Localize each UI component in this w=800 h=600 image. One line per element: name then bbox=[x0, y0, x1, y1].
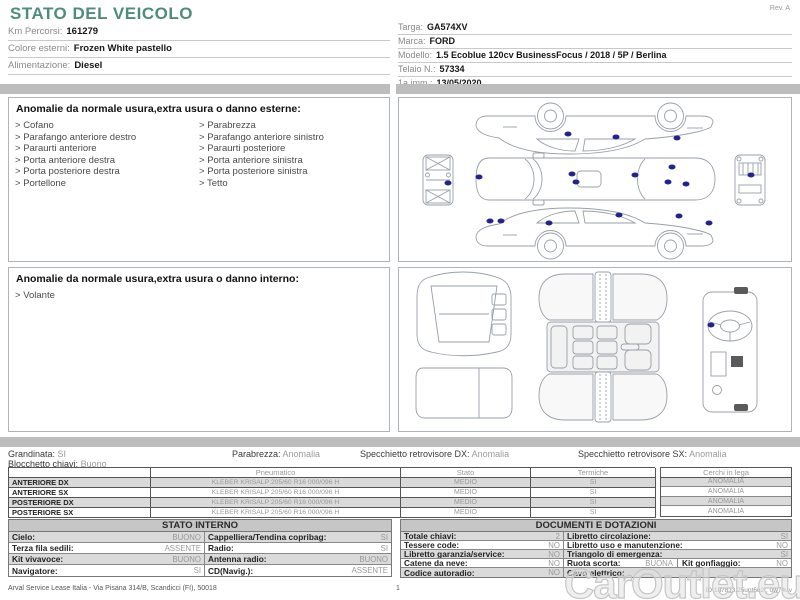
table-row: Kit vivavoce: BUONO Antenna radio: BUONO bbox=[9, 554, 391, 565]
tyre-spec: KLEBER KRISALP 205/60 R16 000/096 H bbox=[151, 488, 401, 498]
row-label: Catene da neve: bbox=[404, 559, 468, 567]
anomaly-column-right: Parabrezza Parafango anteriore sinistro … bbox=[199, 120, 383, 189]
row-label: CD(Navig.): bbox=[208, 566, 253, 576]
anomaly-item: Paraurti anteriore bbox=[15, 143, 199, 155]
anomaly-item: Porta anteriore sinistra bbox=[199, 155, 383, 167]
row-label: Kit vivavoce: bbox=[12, 554, 63, 564]
anomaly-item: Cofano bbox=[15, 120, 199, 132]
anomaly-item: Porta posteriore sinistra bbox=[199, 166, 383, 178]
exterior-diagram-box bbox=[398, 97, 792, 262]
vehicle-info-right: Targa: GA574XV Marca: FORD Modello: 1.5 … bbox=[398, 21, 792, 91]
field-value: FORD bbox=[430, 36, 456, 46]
tyre-stato: MEDIO bbox=[401, 478, 531, 488]
cerchi-in-lega-table: Cerchi in lega ANOMALIA ANOMALIA ANOMALI… bbox=[660, 467, 792, 517]
row-value: NO bbox=[548, 559, 560, 567]
field-label: Km Percorsi: bbox=[8, 26, 62, 37]
table-row: Cielo: BUONO Cappelliera/Tendina copriba… bbox=[9, 532, 391, 543]
stato-interno-table: STATO INTERNO Cielo: BUONO Cappelliera/T… bbox=[8, 519, 392, 577]
interior-anomalies-box: Anomalie da normale usura,extra usura o … bbox=[8, 267, 390, 432]
cerchi-value: ANOMALIA bbox=[661, 506, 791, 516]
field-telaio: Telaio N.: 57334 bbox=[398, 63, 792, 77]
tyre-termiche: SI bbox=[531, 478, 656, 488]
interior-anomalies-title: Anomalie da normale usura,extra usura o … bbox=[16, 273, 383, 285]
row-value: SI bbox=[381, 544, 388, 553]
tyre-stato: MEDIO bbox=[401, 488, 531, 498]
summary-label: Grandinata: bbox=[8, 449, 55, 459]
row-label: Radio: bbox=[208, 543, 234, 553]
stato-interno-title: STATO INTERNO bbox=[9, 520, 391, 532]
field-label: Telaio N.: bbox=[398, 64, 436, 74]
divider-band bbox=[396, 84, 800, 94]
row-value: SI bbox=[781, 532, 788, 540]
caroutlet-watermark: CarOutlet.eu bbox=[564, 560, 800, 600]
tyre-stato: MEDIO bbox=[401, 508, 531, 518]
anomaly-item: Parafango anteriore sinistro bbox=[199, 132, 383, 144]
row-label: Codice autoradio: bbox=[404, 568, 475, 577]
summary-parabrezza: Parabrezza: Anomalia bbox=[232, 449, 320, 459]
row-value: ASSENTE bbox=[352, 566, 388, 575]
table-row: Libretto garanzia/service: NO Triangolo … bbox=[401, 550, 791, 559]
row-label: Libretto garanzia/service: bbox=[404, 550, 505, 558]
anomaly-column-left: Cofano Parafango anteriore destro Paraur… bbox=[15, 120, 199, 189]
row-label: Tessere code: bbox=[404, 541, 459, 549]
tyre-position: POSTERIORE SX bbox=[9, 508, 151, 518]
anomaly-item: Porta posteriore destra bbox=[15, 166, 199, 178]
anomaly-item: Tetto bbox=[199, 178, 383, 190]
summary-value: Anomalia bbox=[283, 449, 321, 459]
row-label: Cappelliera/Tendina copribag: bbox=[208, 532, 326, 542]
tyre-spec: KLEBER KRISALP 205/60 R16 000/096 H bbox=[151, 498, 401, 508]
row-label: Navigatore: bbox=[12, 566, 58, 576]
row-value: SI bbox=[194, 566, 201, 575]
cerchi-value: ANOMALIA bbox=[661, 478, 791, 488]
interior-damage-dots bbox=[399, 268, 791, 431]
cerchi-value: ANOMALIA bbox=[661, 487, 791, 497]
field-value: Frozen White pastello bbox=[74, 43, 172, 54]
field-colore-esterni: Colore esterni: Frozen White pastello bbox=[8, 41, 390, 58]
anomaly-item: Paraurti posteriore bbox=[199, 143, 383, 155]
summary-value: Anomalia bbox=[689, 449, 727, 459]
anomaly-item: Parabrezza bbox=[199, 120, 383, 132]
exterior-anomalies-title: Anomalie da normale usura,extra usura o … bbox=[16, 103, 383, 115]
cerchi-header: Cerchi in lega bbox=[661, 468, 791, 478]
field-modello: Modello: 1.5 Ecoblue 120cv BusinessFocus… bbox=[398, 49, 792, 63]
documenti-title: DOCUMENTI E DOTAZIONI bbox=[401, 520, 791, 532]
field-alimentazione: Alimentazione: Diesel bbox=[8, 58, 390, 75]
row-value: SI bbox=[781, 550, 788, 558]
field-km-percorsi: Km Percorsi: 161279 bbox=[8, 24, 390, 41]
exterior-anomalies-list: Cofano Parafango anteriore destro Paraur… bbox=[15, 120, 383, 189]
table-row: Navigatore: SI CD(Navig.): ASSENTE bbox=[9, 565, 391, 576]
summary-value: SI bbox=[58, 449, 67, 459]
row-label: Cielo: bbox=[12, 532, 35, 542]
tyre-position: ANTERIORE SX bbox=[9, 488, 151, 498]
tyre-spec: KLEBER KRISALP 205/60 R16 000/096 H bbox=[151, 508, 401, 518]
row-value: BUONO bbox=[359, 555, 388, 564]
tyres-header-termiche: Termiche bbox=[531, 468, 656, 478]
row-value: NO bbox=[548, 541, 560, 549]
row-value: 2 bbox=[556, 532, 560, 540]
summary-specchietto-dx: Specchietto retrovisore DX: Anomalia bbox=[360, 449, 509, 459]
cerchi-value: ANOMALIA bbox=[661, 497, 791, 507]
row-value: NO bbox=[776, 541, 788, 549]
anomaly-item: Volante bbox=[15, 290, 383, 302]
anomaly-item: Porta anteriore destra bbox=[15, 155, 199, 167]
summary-label: Specchietto retrovisore SX: bbox=[578, 449, 687, 459]
row-label: Libretto circolazione: bbox=[567, 532, 651, 540]
row-value: BUONO bbox=[172, 533, 201, 542]
row-value: SI bbox=[381, 533, 388, 542]
row-value: NO bbox=[548, 550, 560, 558]
field-value: GA574XV bbox=[427, 22, 468, 32]
field-label: Alimentazione: bbox=[8, 60, 70, 71]
tyre-termiche: SI bbox=[531, 508, 656, 518]
row-value: BUONO bbox=[172, 555, 201, 564]
tyre-stato: MEDIO bbox=[401, 498, 531, 508]
field-label: Colore esterni: bbox=[8, 43, 70, 54]
page-title: STATO DEL VEICOLO bbox=[10, 4, 193, 24]
row-value: NO bbox=[548, 568, 560, 577]
footer-company-address: Arval Service Lease Italia - Via Pisana … bbox=[8, 585, 217, 592]
divider-band bbox=[0, 84, 390, 94]
row-label: Antenna radio: bbox=[208, 554, 267, 564]
field-targa: Targa: GA574XV bbox=[398, 21, 792, 35]
row-label: Triangolo di emergenza: bbox=[567, 550, 662, 558]
footer-page-number: 1 bbox=[396, 585, 400, 592]
tyre-position: ANTERIORE DX bbox=[9, 478, 151, 488]
anomaly-item: Portellone bbox=[15, 178, 199, 190]
divider-band bbox=[0, 437, 800, 447]
summary-specchietto-sx: Specchietto retrovisore SX: Anomalia bbox=[578, 449, 727, 459]
summary-label: Parabrezza: bbox=[232, 449, 281, 459]
tyre-termiche: SI bbox=[531, 498, 656, 508]
tyres-header-empty bbox=[9, 468, 151, 478]
summary-grandinata: Grandinata: SI bbox=[8, 449, 66, 459]
field-label: Modello: bbox=[398, 50, 432, 60]
anomaly-item: Parafango anteriore destro bbox=[15, 132, 199, 144]
tyres-header-stato: Stato bbox=[401, 468, 531, 478]
table-row: Tessere code: NO Libretto uso e manutenz… bbox=[401, 541, 791, 550]
table-row: Totale chiavi: 2 Libretto circolazione: … bbox=[401, 532, 791, 541]
tyre-termiche: SI bbox=[531, 488, 656, 498]
field-value: 1.5 Ecoblue 120cv BusinessFocus / 2018 /… bbox=[436, 50, 666, 60]
row-value: ASSENTE bbox=[165, 544, 201, 553]
tyre-position: POSTERIORE DX bbox=[9, 498, 151, 508]
vehicle-info-left: Km Percorsi: 161279 Colore esterni: Froz… bbox=[8, 24, 390, 75]
tyres-table: Pneumatico Stato Termiche ANTERIORE DX K… bbox=[8, 467, 655, 518]
exterior-anomalies-box: Anomalie da normale usura,extra usura o … bbox=[8, 97, 390, 262]
revision-label: Rev. A bbox=[770, 5, 790, 12]
field-value: 57334 bbox=[440, 64, 465, 74]
summary-label: Specchietto retrovisore DX: bbox=[360, 449, 470, 459]
field-value: Diesel bbox=[74, 60, 102, 71]
row-label: Libretto uso e manutenzione: bbox=[567, 541, 683, 549]
row-label: Terza fila sedili: bbox=[12, 543, 74, 553]
tyre-spec: KLEBER KRISALP 205/60 R16 000/096 H bbox=[151, 478, 401, 488]
vehicle-condition-report: STATO DEL VEICOLO Rev. A Km Percorsi: 16… bbox=[0, 0, 800, 600]
table-row: Terza fila sedili: ASSENTE Radio: SI bbox=[9, 543, 391, 554]
field-value: 161279 bbox=[66, 26, 98, 37]
field-label: Marca: bbox=[398, 36, 426, 46]
field-label: Targa: bbox=[398, 22, 423, 32]
exterior-damage-dots bbox=[399, 98, 791, 261]
row-label: Totale chiavi: bbox=[404, 532, 456, 540]
tyres-header-pneumatico: Pneumatico bbox=[151, 468, 401, 478]
field-marca: Marca: FORD bbox=[398, 35, 792, 49]
interior-diagram-box bbox=[398, 267, 792, 432]
summary-value: Anomalia bbox=[472, 449, 510, 459]
